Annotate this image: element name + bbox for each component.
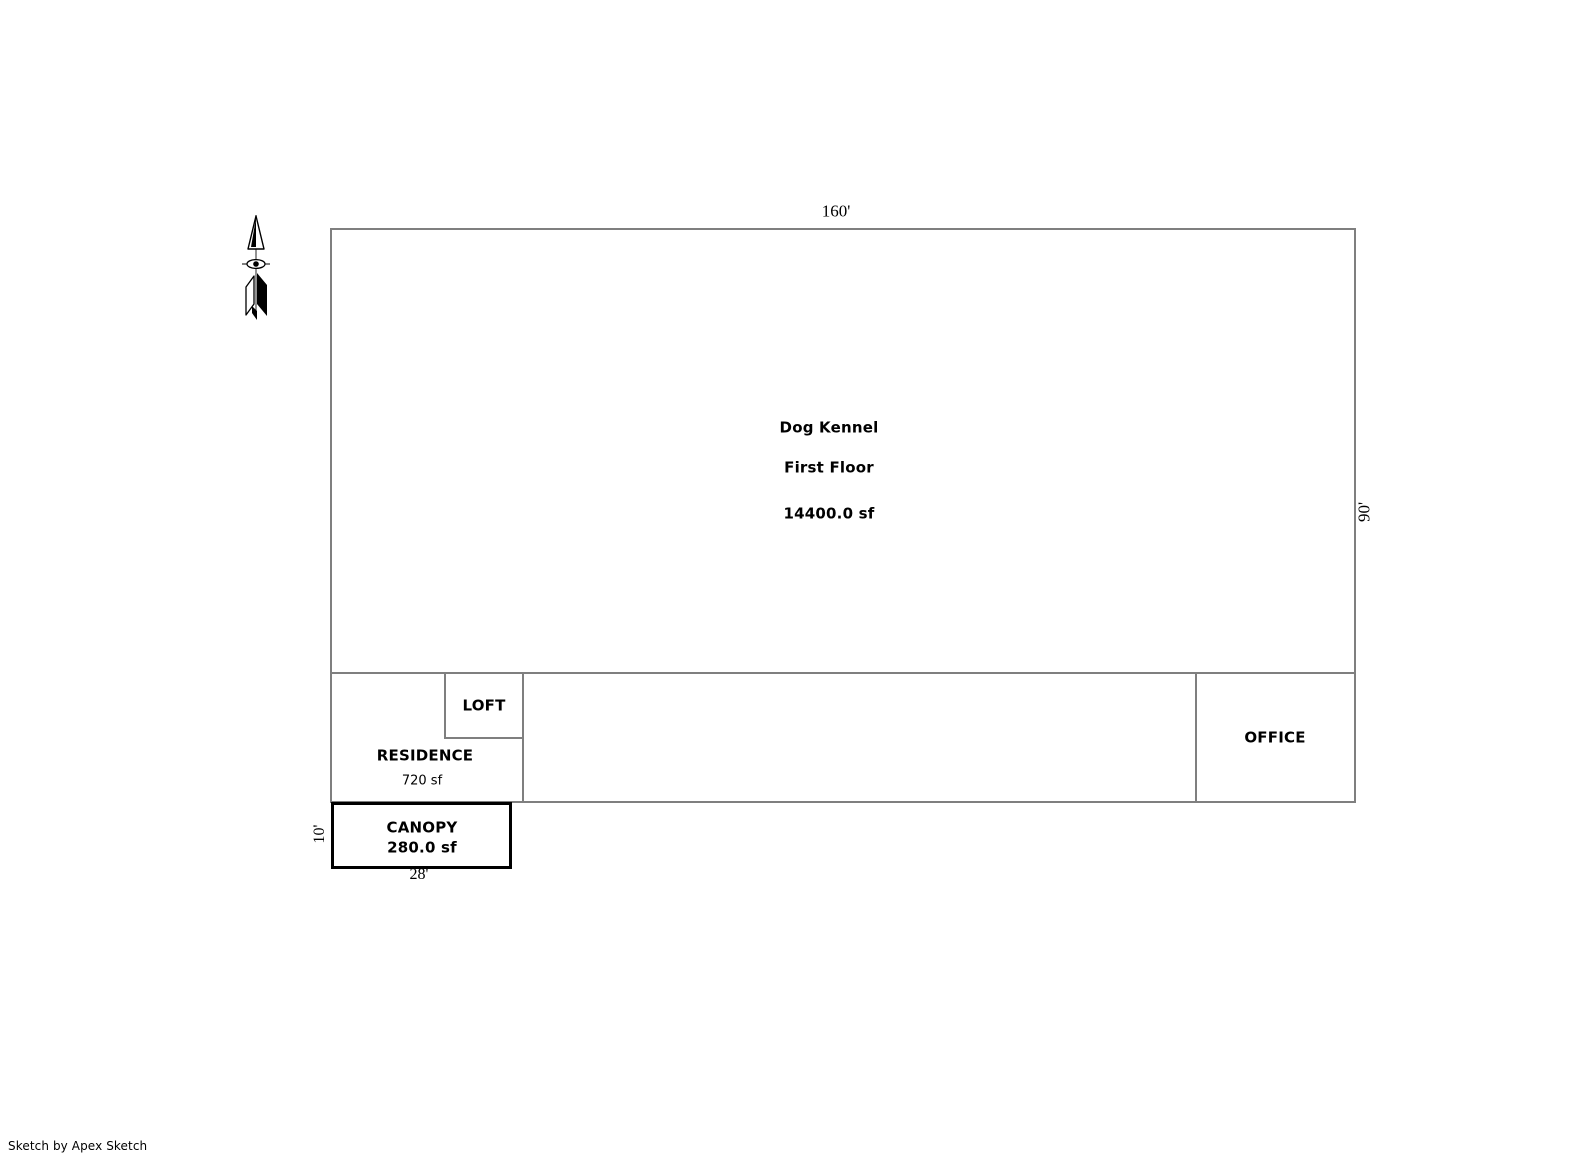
canopy-area-label: 280.0 sf: [387, 841, 457, 856]
building-level-label: First Floor: [784, 461, 874, 476]
loft-room-label: LOFT: [462, 699, 505, 714]
dimension-canopy-height: 10': [312, 825, 328, 844]
building-area-label: 14400.0 sf: [784, 507, 875, 522]
building-name-label: Dog Kennel: [780, 421, 879, 436]
north-arrow-icon: [239, 211, 273, 321]
office-room-label: OFFICE: [1244, 731, 1305, 746]
dimension-canopy-width: 28': [410, 867, 429, 883]
floor-plan-sketch: 160' 90' Dog Kennel First Floor 14400.0 …: [0, 0, 1585, 1163]
sketch-credit: Sketch by Apex Sketch: [8, 1139, 147, 1153]
canopy-room-label: CANOPY: [387, 821, 458, 836]
residence-area-label: 720 sf: [402, 775, 442, 788]
dimension-top-width: 160': [822, 203, 851, 220]
residence-room-label: RESIDENCE: [377, 749, 474, 764]
office-partition-wall: [1195, 672, 1197, 803]
dimension-right-height: 90': [1356, 502, 1373, 522]
